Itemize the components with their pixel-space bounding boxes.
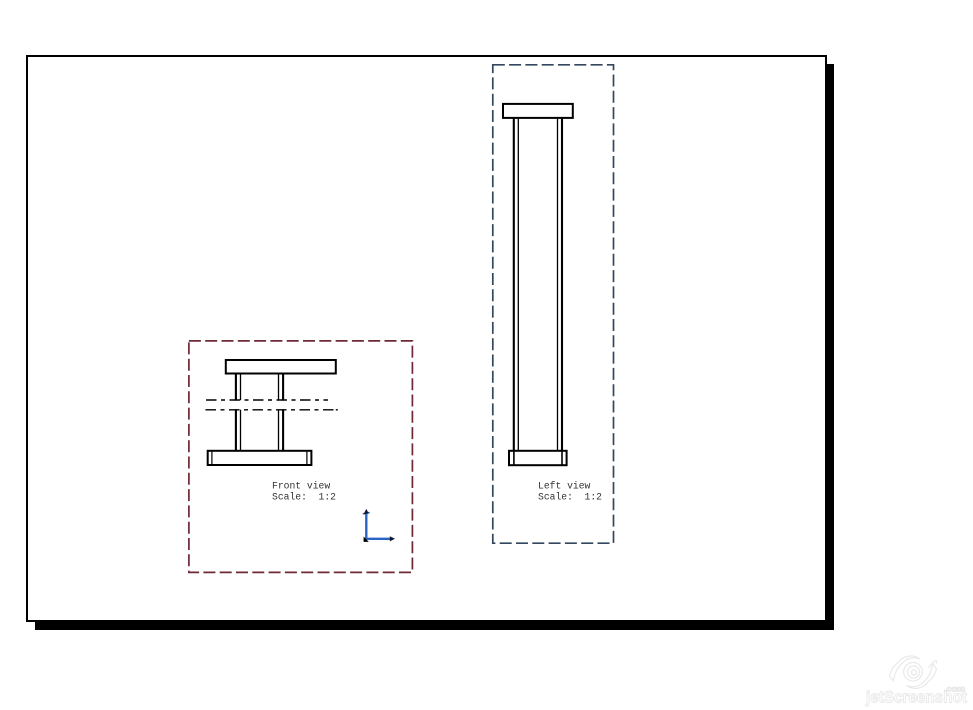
svg-text:Left view: Left view (538, 481, 591, 492)
svg-text:Scale: 1:2: Scale: 1:2 (272, 492, 336, 503)
svg-text:Front view: Front view (272, 481, 330, 492)
svg-text:Scale: 1:2: Scale: 1:2 (538, 492, 602, 503)
svg-text:.com: .com (944, 685, 965, 694)
